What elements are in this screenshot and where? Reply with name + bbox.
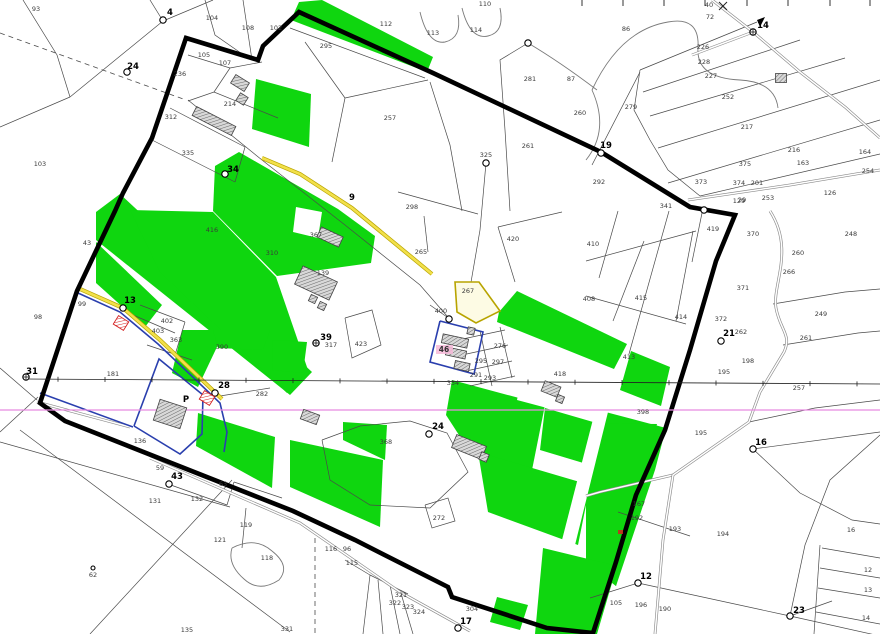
parcel-number-label: 107 xyxy=(219,59,231,67)
survey-point xyxy=(160,17,166,23)
parcel-number-label: 116 xyxy=(325,545,337,553)
survey-point-label: 24 xyxy=(127,62,139,72)
survey-point-label: 19 xyxy=(600,141,612,151)
parcel-number-label: 375 xyxy=(739,160,751,168)
parcel-number-label: 63 xyxy=(219,480,227,488)
parcel-number-label: 373 xyxy=(695,178,707,186)
parcel-number-label: 43 xyxy=(83,239,91,247)
survey-point-label: 34 xyxy=(227,165,239,175)
parcel-number-label: 236 xyxy=(174,70,186,78)
parcel-number-label: 29 xyxy=(738,196,746,204)
parcel-number-label: 260 xyxy=(792,249,804,257)
parcel-number-label: 415 xyxy=(635,294,647,302)
cadastral-map-image: 46 9310410810210510723621431233510343989… xyxy=(0,0,880,634)
survey-point-label: 28 xyxy=(218,381,230,391)
parcel-number-label: 112 xyxy=(380,20,392,28)
parcel-number-label: 254 xyxy=(862,167,874,175)
parcel-number-label: 267 xyxy=(462,287,474,295)
parcel-number-label: 335 xyxy=(182,149,194,157)
survey-point xyxy=(446,316,452,322)
parcel-number-label: 374 xyxy=(733,179,745,187)
survey-point-label: 17 xyxy=(460,617,472,627)
parcel-number-label: 99 xyxy=(78,300,86,308)
parcel-number-label: 304 xyxy=(466,605,478,613)
parcel-number-label: 252 xyxy=(722,93,734,101)
parcel-number-label: 195 xyxy=(695,429,707,437)
parcel-number-label: 198 xyxy=(742,357,754,365)
parcel-number-label: 367 xyxy=(310,231,322,239)
parcel-number-label: 261 xyxy=(800,334,812,342)
parcel-number-label: 257 xyxy=(384,114,396,122)
parcel-number-label: 402 xyxy=(161,317,173,325)
survey-point-label: 24 xyxy=(432,422,444,432)
parcel-number-label: 418 xyxy=(554,370,566,378)
parcel-number-label: 281 xyxy=(524,75,536,83)
parcel-number-label: 371 xyxy=(737,284,749,292)
parcel-number-label: 12 xyxy=(864,566,872,574)
parcel-number-label: 227 xyxy=(705,72,717,80)
parcel-number-label: 416 xyxy=(206,226,218,234)
parcel-number-label: 420 xyxy=(507,235,519,243)
parcel-number-label: 104 xyxy=(206,14,218,22)
survey-point-label: 13 xyxy=(124,296,136,306)
parcel-number-label: 410 xyxy=(587,240,599,248)
parcel-number-label: 86 xyxy=(622,25,630,33)
parcel-number-label: 105 xyxy=(610,599,622,607)
survey-point xyxy=(483,160,489,166)
parcel-number-label: 131 xyxy=(149,497,161,505)
parcel-number-label: 190 xyxy=(659,605,671,613)
vegetation-area xyxy=(272,340,307,373)
parcel-number-label: 40 xyxy=(705,1,713,9)
survey-point xyxy=(525,40,531,46)
parcel-number-label: 192 xyxy=(631,514,643,522)
parcel-number-label: 334 xyxy=(447,379,459,387)
parcel-number-label: 228 xyxy=(698,58,710,66)
parcel-number-label: 87 xyxy=(567,75,575,83)
parcel-number-label: 201 xyxy=(751,179,763,187)
parcel-number-label: 181 xyxy=(107,370,119,378)
parcel-number-label: 310 xyxy=(266,249,278,257)
parcel-number-label: 390 xyxy=(216,343,228,351)
parcel-number-label: 297 xyxy=(492,358,504,366)
parcel-number-label: 136 xyxy=(134,437,146,445)
parcel-number-label: 113 xyxy=(427,29,439,37)
parcel-number-label: 164 xyxy=(859,148,871,156)
parcel-number-label: 321 xyxy=(395,591,407,599)
parcel-number-label: 260 xyxy=(574,109,586,117)
parcel-number-label: 121 xyxy=(214,536,226,544)
parcel-number-label: 257 xyxy=(793,384,805,392)
parcel-number-label: 266 xyxy=(783,268,795,276)
parcel-number-label: 331 xyxy=(281,625,293,633)
parcel-number-label: 167 xyxy=(633,500,645,508)
parcel-number-label: 226 xyxy=(697,43,709,51)
parcel-number-label: 93 xyxy=(32,5,40,13)
parcel-number-label: 291 xyxy=(470,371,482,379)
parcel-number-label: 261 xyxy=(522,142,534,150)
parcel-number-label: 249 xyxy=(815,310,827,318)
survey-point-label: 12 xyxy=(640,572,652,582)
parcel-number-label: 265 xyxy=(415,248,427,256)
parcel-number-label: 193 xyxy=(669,525,681,533)
parcel-number-label: 110 xyxy=(479,0,491,8)
parcel-number-label: 363 xyxy=(170,336,182,344)
survey-point-label: 21 xyxy=(723,329,735,339)
parcel-number-label: 105 xyxy=(198,51,210,59)
parcel-number-label: 217 xyxy=(741,123,753,131)
survey-point-label: P xyxy=(183,395,189,405)
parcel-number-label: 414 xyxy=(675,313,687,321)
red-parcel-label: 46 xyxy=(439,345,449,354)
survey-point xyxy=(91,566,95,570)
parcel-number-label: 341 xyxy=(660,202,672,210)
parcel-number-label: 216 xyxy=(788,146,800,154)
survey-point-label: 31 xyxy=(26,367,38,377)
survey-point-label: 39 xyxy=(320,333,332,343)
parcel-number-label: 132 xyxy=(191,495,203,503)
parcel-number-label: 163 xyxy=(797,159,809,167)
parcel-number-label: 298 xyxy=(406,203,418,211)
parcel-number-label: 400 xyxy=(435,307,447,315)
parcel-number-label: 126 xyxy=(824,189,836,197)
parcel-number-label: 322 xyxy=(389,599,401,607)
cadastral-map-page: 46 9310410810210510723621431233510343989… xyxy=(0,0,880,634)
survey-point-label: 9 xyxy=(349,193,355,203)
parcel-number-label: 13 xyxy=(864,586,872,594)
survey-point-label: 16 xyxy=(755,438,767,448)
parcel-number-label: 370 xyxy=(747,230,759,238)
parcel-number-label: 16 xyxy=(847,526,855,534)
parcel-number-label: 372 xyxy=(715,315,727,323)
building-footprint xyxy=(467,327,475,335)
parcel-number-label: 118 xyxy=(261,554,273,562)
parcel-number-label: 196 xyxy=(635,601,647,609)
parcel-number-label: 272 xyxy=(433,514,445,522)
parcel-number-label: 108 xyxy=(242,24,254,32)
parcel-number-label: 194 xyxy=(717,530,729,538)
parcel-number-label: 413 xyxy=(623,353,635,361)
parcel-number-label: 408 xyxy=(583,295,595,303)
parcel-number-label: 195 xyxy=(718,368,730,376)
parcel-number-label: 276 xyxy=(494,342,506,350)
parcel-number-label: 325 xyxy=(480,151,492,159)
parcel-number-label: 96 xyxy=(343,545,351,553)
survey-point-label: 14 xyxy=(757,21,769,31)
building-footprint xyxy=(776,74,787,83)
parcel-number-label: 62 xyxy=(89,571,97,579)
parcel-number-label: 139 xyxy=(317,269,329,277)
parcel-number-label: 403 xyxy=(152,327,164,335)
parcel-number-label: 295 xyxy=(475,357,487,365)
parcel-number-label: 14 xyxy=(862,614,870,622)
parcel-number-label: 398 xyxy=(637,408,649,416)
parcel-number-label: 103 xyxy=(34,160,46,168)
parcel-number-label: 98 xyxy=(34,313,42,321)
parcel-number-label: 119 xyxy=(240,521,252,529)
survey-point xyxy=(701,207,707,213)
parcel-number-label: 115 xyxy=(346,559,358,567)
parcel-number-label: 423 xyxy=(355,340,367,348)
survey-point-label: 43 xyxy=(171,472,183,482)
survey-point-label: 4 xyxy=(167,8,173,18)
parcel-number-label: 368 xyxy=(380,438,392,446)
parcel-number-label: 248 xyxy=(845,230,857,238)
parcel-number-label: 72 xyxy=(706,13,714,21)
parcel-number-label: 102 xyxy=(270,24,282,32)
parcel-number-label: 114 xyxy=(470,26,482,34)
red-fleck xyxy=(618,530,623,534)
parcel-number-label: 419 xyxy=(707,225,719,233)
parcel-number-label: 253 xyxy=(762,194,774,202)
survey-point-label: 23 xyxy=(793,606,805,616)
parcel-number-label: 279 xyxy=(625,103,637,111)
parcel-number-label: 214 xyxy=(224,100,236,108)
parcel-number-label: 59 xyxy=(156,464,164,472)
parcel-number-label: 324 xyxy=(413,608,425,616)
parcel-number-label: 312 xyxy=(165,113,177,121)
parcel-number-label: 295 xyxy=(320,42,332,50)
parcel-number-label: 262 xyxy=(735,328,747,336)
parcel-number-label: 135 xyxy=(181,626,193,634)
parcel-number-label: 282 xyxy=(256,390,268,398)
parcel-number-label: 293 xyxy=(484,374,496,382)
parcel-number-label: 292 xyxy=(593,178,605,186)
